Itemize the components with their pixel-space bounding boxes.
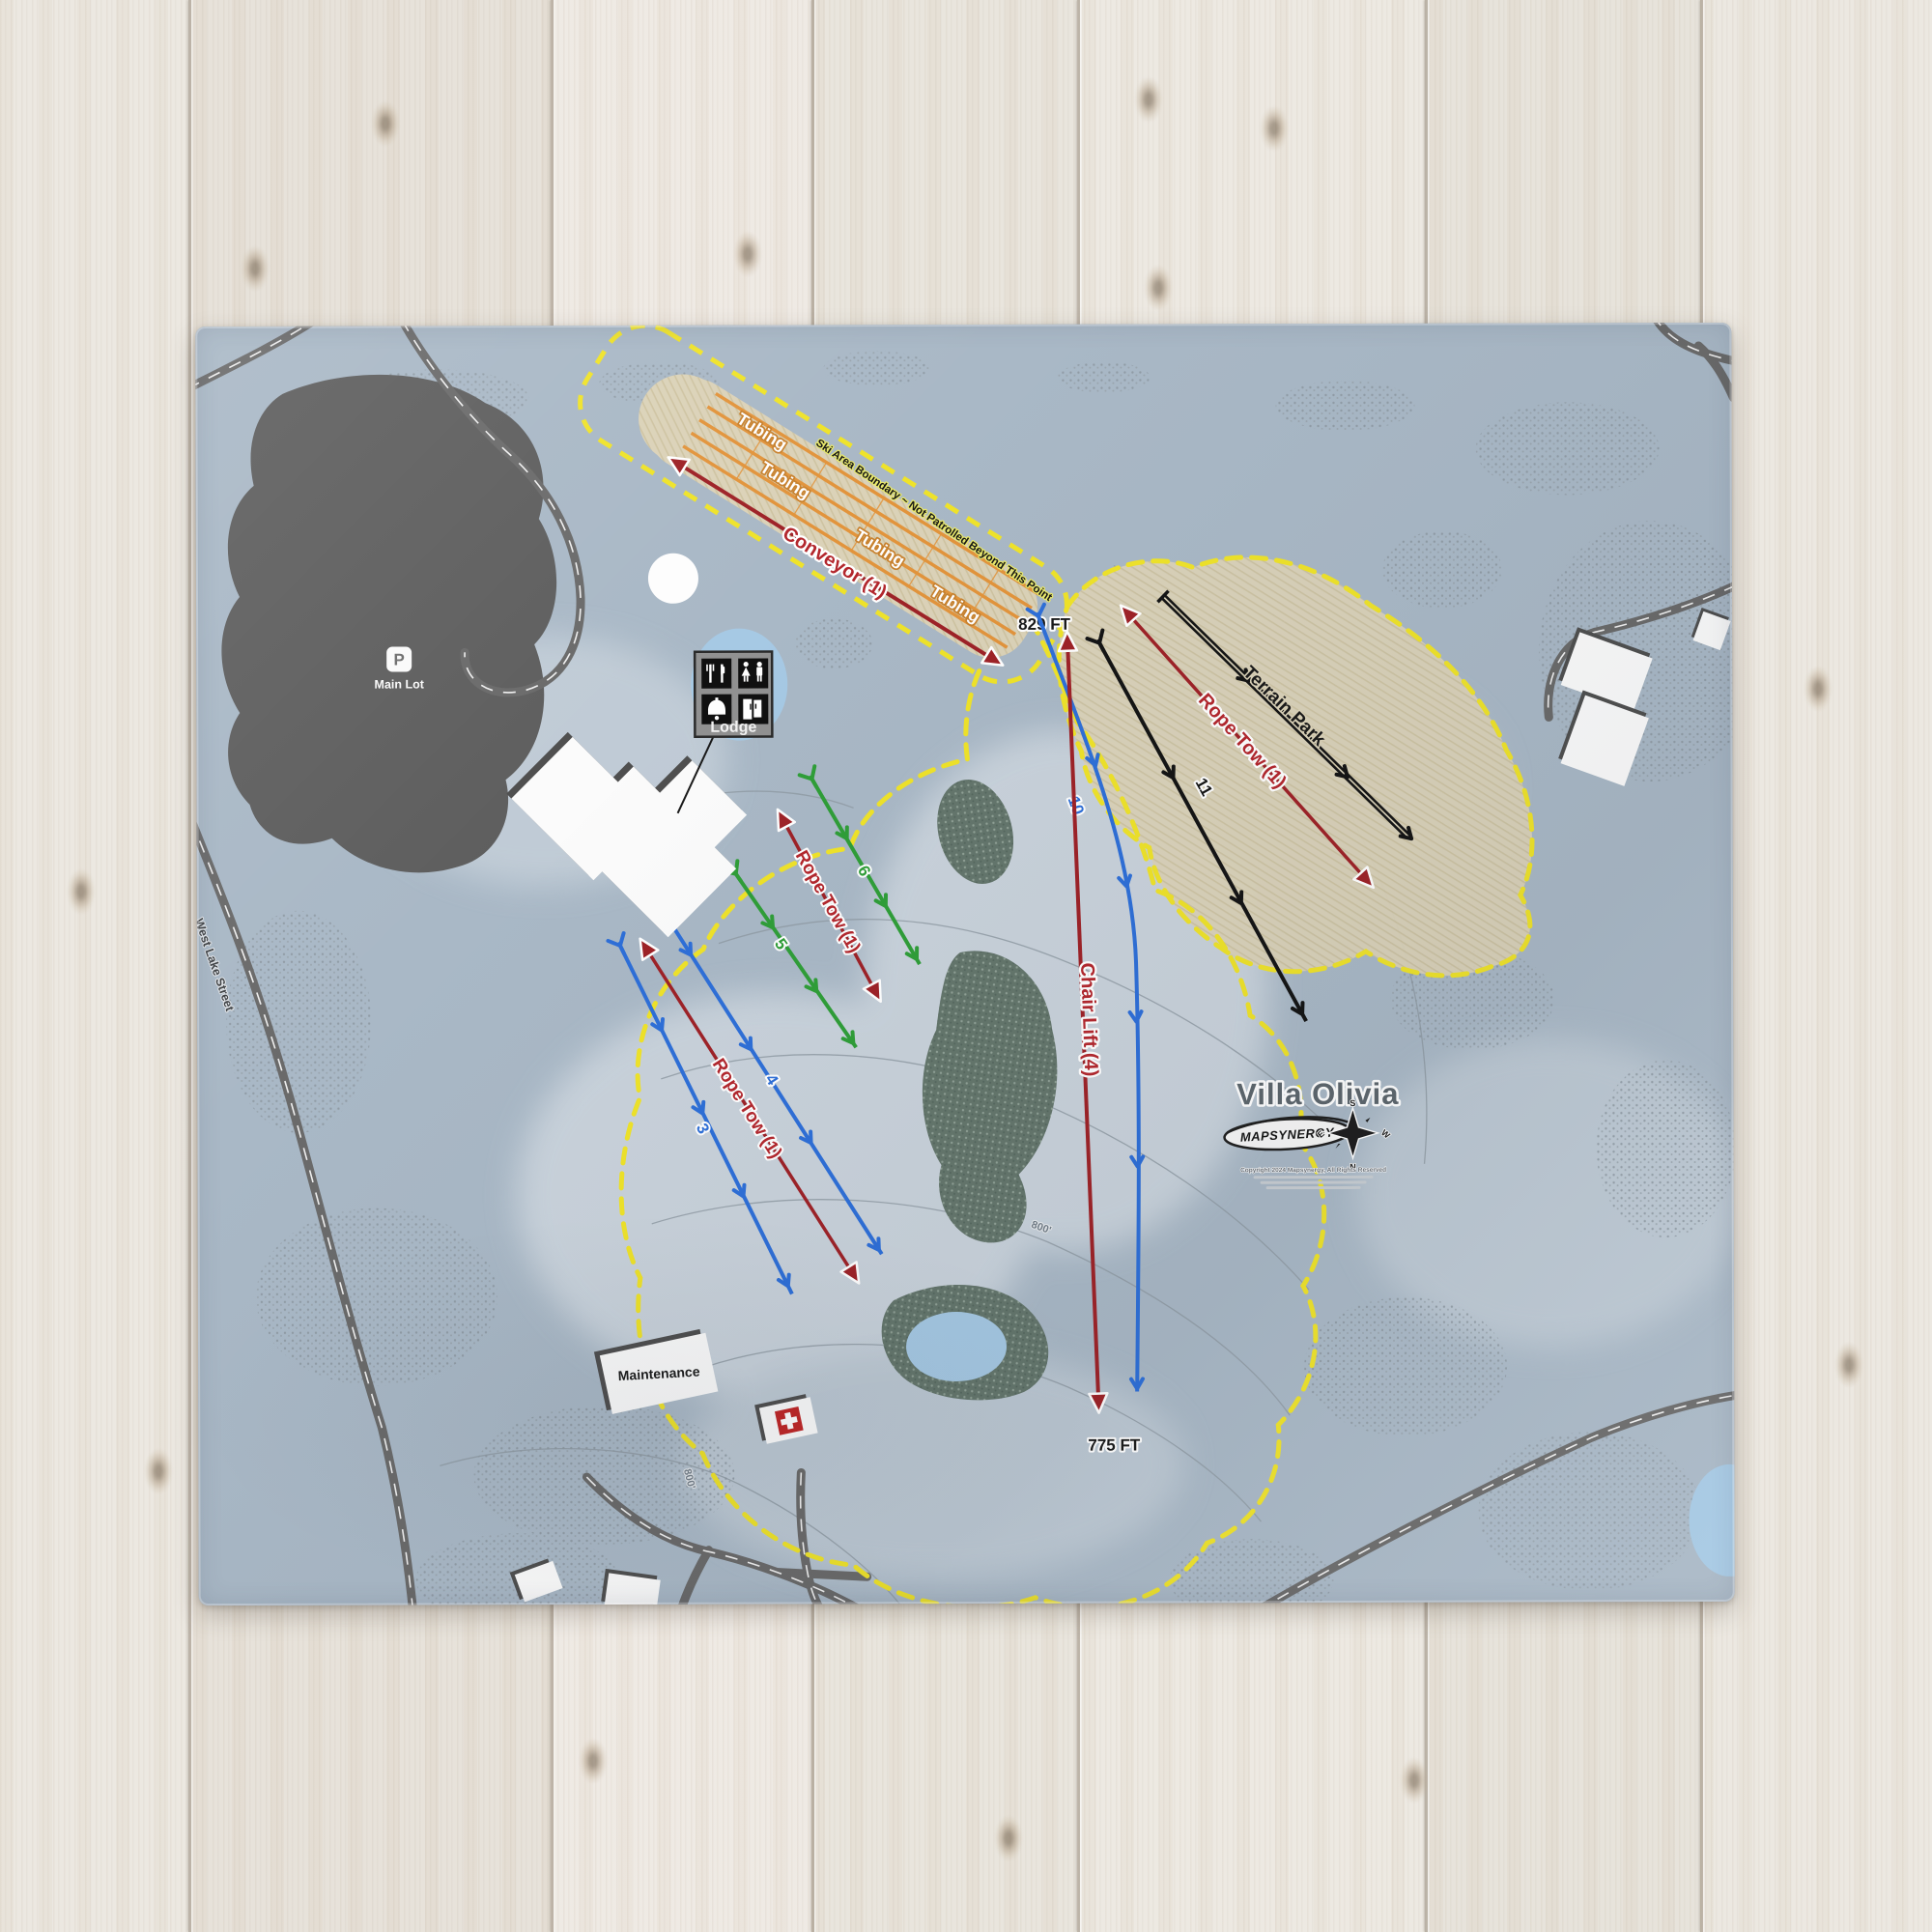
wood-knot — [145, 1449, 172, 1493]
wood-knot — [241, 246, 269, 291]
parking-icon-letter: P — [393, 651, 404, 669]
wood-knot — [1135, 77, 1162, 122]
trail-map-svg: 800' 800' P Main Lot — [195, 323, 1734, 1605]
lodge-label: Lodge — [710, 720, 756, 736]
wood-knot — [1401, 1758, 1428, 1803]
base-elevation-label: 775 FT — [1088, 1436, 1141, 1455]
trail-map-blanket: 800' 800' P Main Lot — [195, 323, 1734, 1605]
clearing-circle — [648, 554, 698, 604]
chair-lift-label: Chair Lift (4) — [1076, 962, 1101, 1077]
wood-knot — [68, 869, 95, 914]
wood-knot — [1835, 1343, 1862, 1387]
restaurant-icon — [701, 659, 731, 689]
base-pond — [906, 1312, 1007, 1381]
wood-knot — [1145, 266, 1172, 310]
copyright-small-print — [1254, 1176, 1374, 1189]
restroom-icon — [738, 659, 768, 689]
first-aid-icon — [775, 1406, 804, 1435]
wood-knot — [580, 1739, 607, 1783]
compass-letter-top: S — [1350, 1098, 1355, 1108]
product-photo: 800' 800' P Main Lot — [0, 0, 1932, 1932]
map-title: Villa Olivia — [1236, 1077, 1399, 1111]
wood-knot — [372, 101, 399, 146]
plank-gap — [188, 0, 191, 1932]
wood-knot — [1261, 106, 1288, 151]
main-lot-label: Main Lot — [375, 677, 425, 691]
wood-knot — [734, 232, 761, 276]
wood-knot — [1804, 667, 1832, 711]
title-block: Villa Olivia MAPSYNERGY S N E W Copyrigh… — [1224, 1077, 1400, 1189]
copyright-line: Copyright 2024 Mapsynergy, All Rights Re… — [1240, 1167, 1386, 1174]
wood-knot — [995, 1816, 1022, 1861]
